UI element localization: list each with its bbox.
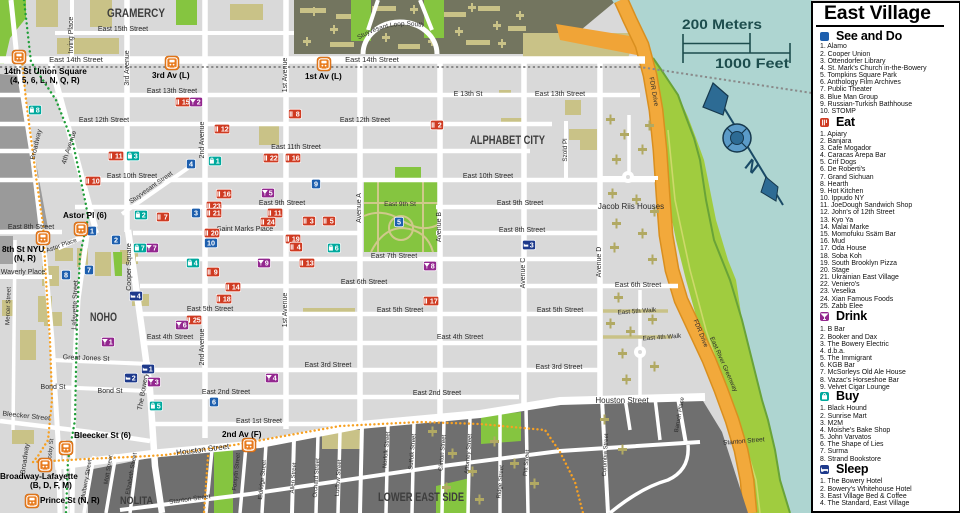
svg-text:Houston Street: Houston Street [595, 396, 649, 405]
svg-text:Bond St: Bond St [41, 384, 66, 391]
svg-text:22: 22 [270, 154, 278, 163]
svg-text:3rd Avenue: 3rd Avenue [124, 50, 131, 85]
svg-text:Prince St (N, R): Prince St (N, R) [40, 496, 100, 505]
svg-text:1st Avenue: 1st Avenue [282, 293, 289, 328]
svg-text:4: 4 [194, 259, 198, 268]
svg-text:Avenue B: Avenue B [436, 212, 443, 243]
svg-text:6: 6 [335, 244, 339, 253]
svg-text:East 14th Street: East 14th Street [345, 55, 400, 64]
svg-text:20: 20 [211, 229, 219, 238]
svg-text:East 9th Street: East 9th Street [259, 200, 305, 207]
svg-text:4: 4 [189, 160, 193, 169]
svg-text:East 3rd Street: East 3rd Street [305, 362, 352, 369]
svg-text:East 4th Street: East 4th Street [437, 334, 483, 341]
svg-text:4: 4 [137, 292, 141, 301]
svg-text:East 2nd Street: East 2nd Street [202, 389, 250, 396]
svg-text:East 4th Street: East 4th Street [147, 334, 193, 341]
svg-text:2nd Avenue: 2nd Avenue [199, 328, 206, 365]
svg-text:200 Meters: 200 Meters [682, 16, 762, 32]
svg-text:2: 2 [114, 236, 118, 245]
svg-text:Bleecker St (6): Bleecker St (6) [74, 431, 131, 440]
svg-text:East 12th Street: East 12th Street [79, 117, 129, 124]
svg-text:3: 3 [155, 378, 159, 387]
svg-text:7: 7 [164, 213, 168, 222]
svg-text:(4, 5, 6, L, N, Q, R): (4, 5, 6, L, N, Q, R) [10, 76, 80, 85]
svg-text:15: 15 [182, 98, 190, 107]
svg-text:East 5th Street: East 5th Street [377, 307, 423, 314]
svg-text:8th St NYU: 8th St NYU [2, 245, 44, 254]
svg-text:2nd Av (F): 2nd Av (F) [222, 430, 262, 439]
svg-text:Broadway-Lafayette: Broadway-Lafayette [0, 472, 78, 481]
svg-text:7: 7 [153, 244, 157, 253]
svg-text:East 5th Street: East 5th Street [187, 306, 233, 313]
svg-text:Mercer Street: Mercer Street [4, 287, 12, 326]
svg-text:NOLITA: NOLITA [120, 495, 153, 507]
svg-text:East 9th St: East 9th St [384, 201, 416, 208]
svg-text:5: 5 [330, 217, 334, 226]
svg-text:East 10th Street: East 10th Street [463, 173, 513, 180]
svg-text:E 13th St: E 13th St [454, 91, 483, 98]
svg-text:East 3rd Street: East 3rd Street [536, 364, 583, 371]
svg-text:2: 2 [132, 374, 136, 383]
svg-text:GRAMERCY: GRAMERCY [107, 8, 165, 20]
svg-text:16: 16 [292, 154, 300, 163]
svg-text:2: 2 [142, 211, 146, 220]
svg-text:Irving Place: Irving Place [68, 17, 75, 54]
svg-text:6: 6 [183, 321, 187, 330]
svg-text:16: 16 [223, 190, 231, 199]
svg-text:Waverly Place: Waverly Place [1, 269, 46, 276]
svg-text:10: 10 [92, 177, 100, 186]
svg-text:8: 8 [431, 262, 435, 271]
svg-text:East 2nd Street: East 2nd Street [413, 390, 461, 397]
svg-text:ALPHABET CITY: ALPHABET CITY [470, 135, 545, 147]
svg-text:Szold Pl: Szold Pl [562, 138, 569, 161]
svg-text:East 11th Street: East 11th Street [271, 144, 321, 151]
svg-text:Avenue D: Avenue D [596, 247, 603, 278]
svg-text:7: 7 [87, 266, 91, 275]
svg-text:3: 3 [310, 217, 314, 226]
svg-text:11: 11 [274, 209, 282, 218]
svg-text:12: 12 [221, 125, 229, 134]
svg-text:5: 5 [157, 402, 161, 411]
svg-text:East 9th Street: East 9th Street [497, 200, 543, 207]
svg-text:6: 6 [212, 398, 216, 407]
svg-text:1st Av (L): 1st Av (L) [305, 72, 342, 81]
svg-text:2: 2 [197, 98, 201, 107]
svg-text:1000 Feet: 1000 Feet [715, 55, 789, 71]
svg-text:NOHO: NOHO [90, 310, 117, 324]
svg-text:East 10th Street: East 10th Street [107, 173, 157, 180]
svg-text:East 1st Street: East 1st Street [236, 418, 282, 425]
svg-text:1st Avenue: 1st Avenue [282, 58, 289, 93]
svg-text:East 7th Street: East 7th Street [371, 253, 417, 260]
svg-text:East 5th Street: East 5th Street [537, 307, 583, 314]
svg-text:9: 9 [214, 268, 218, 277]
svg-text:25: 25 [193, 316, 201, 325]
svg-text:East 13th Street: East 13th Street [535, 91, 585, 98]
svg-text:18: 18 [223, 295, 231, 304]
svg-text:3: 3 [134, 152, 138, 161]
svg-text:East 6th Street: East 6th Street [341, 279, 387, 286]
svg-text:Astor Pl (6): Astor Pl (6) [63, 211, 107, 220]
svg-text:Avenue C: Avenue C [520, 258, 527, 289]
svg-text:14th St Union Square: 14th St Union Square [4, 67, 87, 76]
svg-text:8: 8 [296, 110, 300, 119]
svg-text:East 13th Street: East 13th Street [147, 88, 197, 95]
svg-text:1: 1 [90, 227, 94, 236]
svg-text:East 15th Street: East 15th Street [98, 26, 148, 33]
svg-text:(N, R): (N, R) [14, 254, 36, 263]
svg-text:(B, D, F, M): (B, D, F, M) [30, 481, 72, 490]
svg-text:9: 9 [265, 259, 269, 268]
svg-text:8: 8 [64, 271, 68, 280]
svg-text:5: 5 [397, 218, 401, 227]
svg-text:East 6th Street: East 6th Street [615, 282, 661, 289]
svg-text:5: 5 [269, 189, 273, 198]
svg-text:East 14th Street: East 14th Street [49, 55, 104, 64]
svg-text:8: 8 [36, 106, 40, 115]
svg-text:11: 11 [115, 152, 123, 161]
svg-text:East 8th Street: East 8th Street [8, 224, 54, 231]
svg-text:21: 21 [213, 209, 221, 218]
svg-text:10: 10 [207, 239, 215, 248]
svg-text:Jacob Riis Houses: Jacob Riis Houses [598, 202, 664, 211]
svg-text:3rd Av (L): 3rd Av (L) [152, 71, 190, 80]
svg-text:Avenue A: Avenue A [356, 193, 363, 223]
svg-text:14: 14 [232, 283, 240, 292]
svg-text:1: 1 [149, 365, 153, 374]
svg-text:3: 3 [530, 241, 534, 250]
svg-text:24: 24 [267, 218, 275, 227]
svg-text:Cooper Square: Cooper Square [126, 243, 133, 291]
svg-text:17: 17 [430, 297, 438, 306]
svg-text:3: 3 [194, 209, 198, 218]
svg-text:1: 1 [109, 338, 113, 347]
svg-text:Bond St: Bond St [98, 388, 123, 395]
svg-text:2: 2 [438, 121, 442, 130]
svg-text:4: 4 [273, 374, 277, 383]
svg-text:East 12th Street: East 12th Street [340, 117, 390, 124]
svg-text:7: 7 [141, 244, 145, 253]
svg-text:9: 9 [314, 180, 318, 189]
svg-text:13: 13 [306, 259, 314, 268]
svg-text:4: 4 [297, 243, 301, 252]
svg-text:East 8th Street: East 8th Street [499, 227, 545, 234]
svg-text:LOWER EAST SIDE: LOWER EAST SIDE [378, 492, 464, 504]
svg-text:2nd Avenue: 2nd Avenue [199, 121, 206, 158]
svg-text:1: 1 [216, 157, 220, 166]
